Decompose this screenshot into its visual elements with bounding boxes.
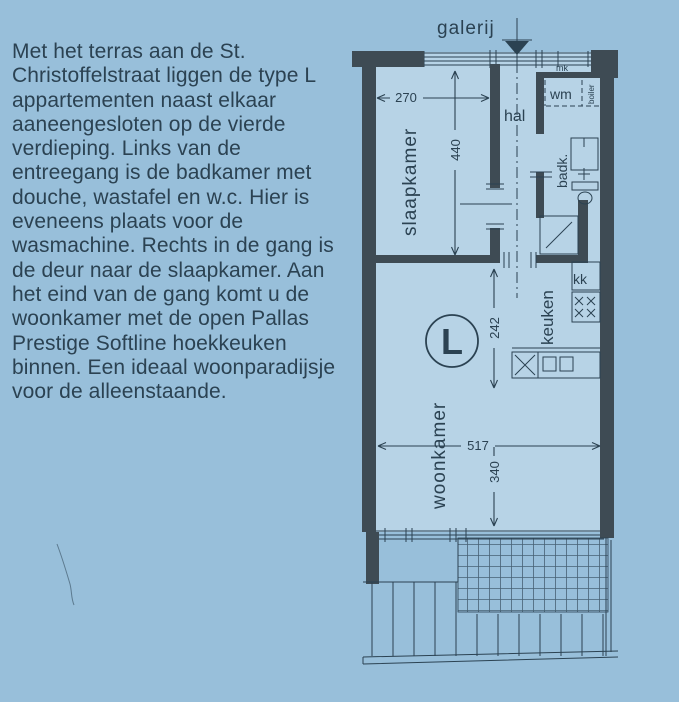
svg-text:270: 270	[395, 90, 417, 105]
brochure-page: Met het terras aan de St. Christoffelstr…	[0, 0, 679, 702]
svg-text:L: L	[441, 321, 463, 362]
label-hal: hal	[504, 108, 525, 125]
label-koelkast: kk	[573, 271, 588, 287]
terrace	[363, 538, 618, 664]
svg-text:340: 340	[487, 461, 502, 483]
label-badkamer: badk.	[554, 154, 570, 188]
label-slaapkamer: slaapkamer	[400, 128, 421, 236]
svg-text:440: 440	[448, 139, 463, 161]
floorplan-drawing: 270 440 242 517 340	[0, 0, 679, 702]
svg-text:242: 242	[487, 317, 502, 339]
scan-artifact-line	[57, 544, 74, 605]
label-keuken: keuken	[538, 290, 557, 345]
svg-text:517: 517	[467, 438, 489, 453]
terrace-slab	[458, 538, 608, 612]
label-boiler: boiler	[587, 84, 596, 104]
label-meterkast: mk	[556, 63, 568, 73]
label-woonkamer: woonkamer	[429, 402, 450, 510]
label-galerij: galerij	[437, 18, 495, 39]
label-wasmachine: wm	[549, 86, 572, 102]
